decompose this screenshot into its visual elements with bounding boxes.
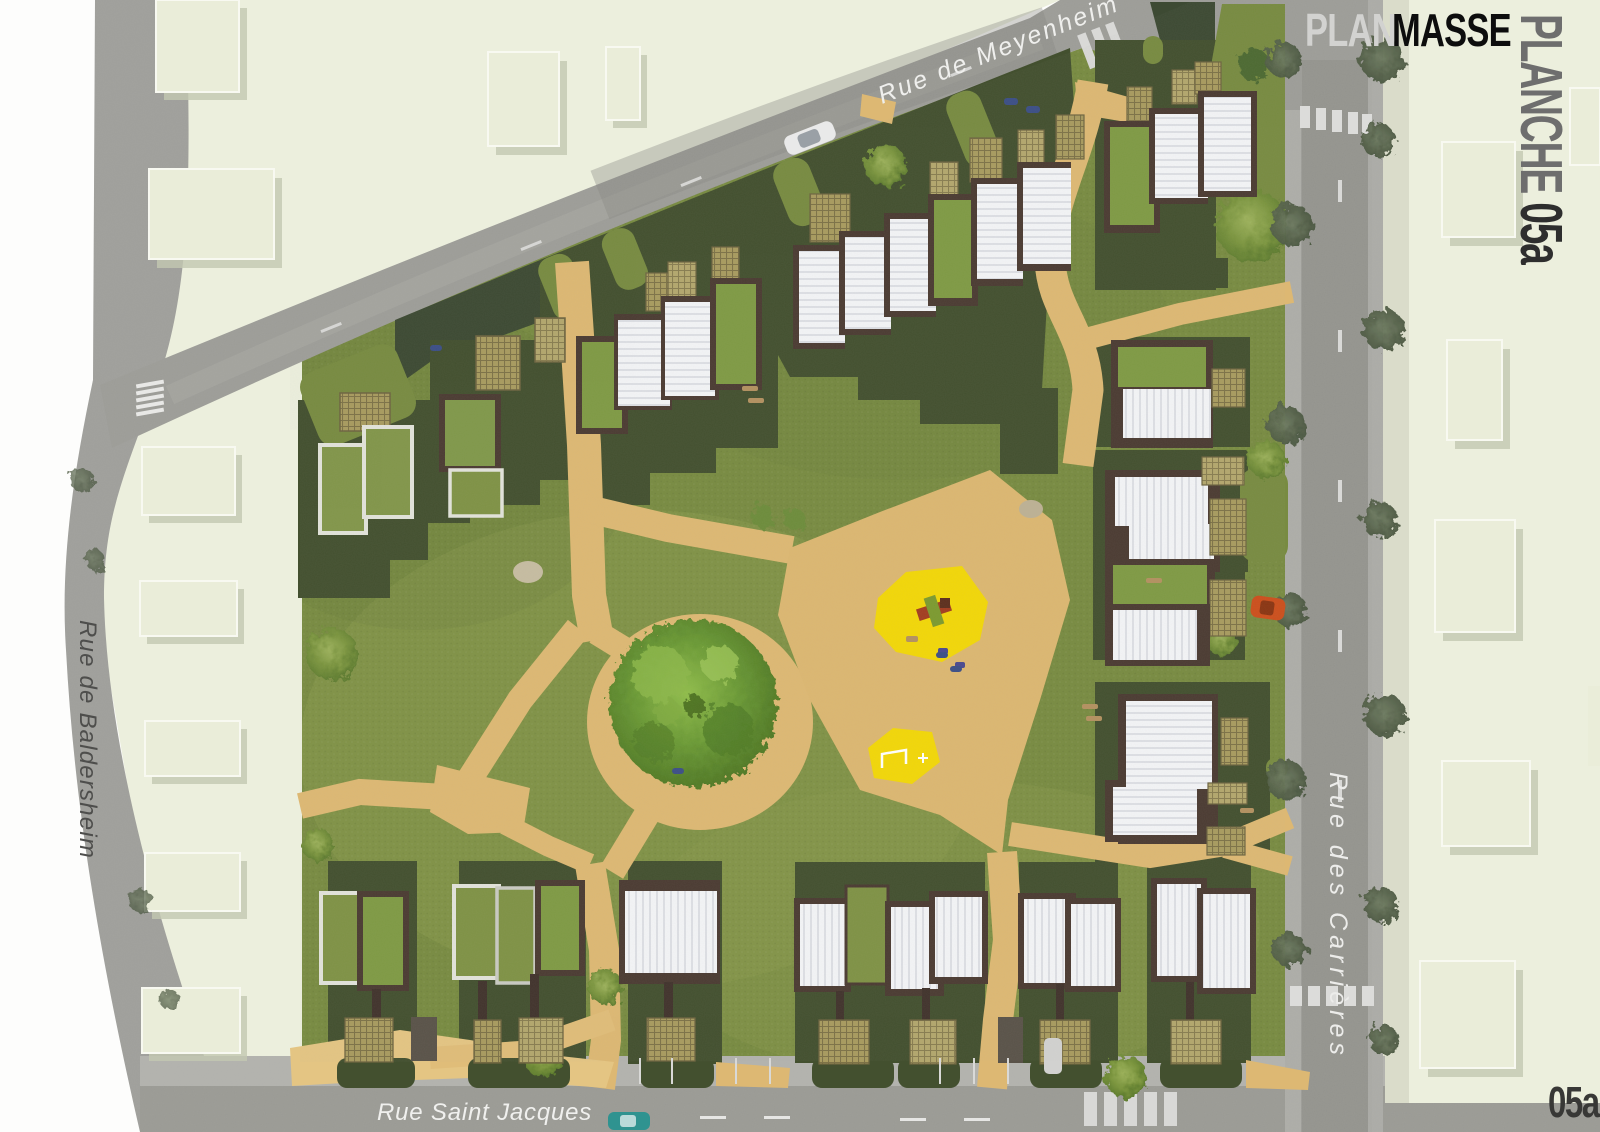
svg-text:Rue Saint Jacques: Rue Saint Jacques	[377, 1099, 592, 1126]
svg-text:MASSE: MASSE	[1392, 4, 1511, 56]
svg-text:Rue de Baldersheim: Rue de Baldersheim	[74, 620, 101, 859]
svg-text:PLAN: PLAN	[1305, 4, 1396, 56]
svg-text:PLANCHE 05a: PLANCHE 05a	[1508, 14, 1574, 266]
svg-text:05a: 05a	[1548, 1079, 1600, 1128]
svg-text:Rue des Carrières: Rue des Carrières	[1324, 772, 1352, 1060]
